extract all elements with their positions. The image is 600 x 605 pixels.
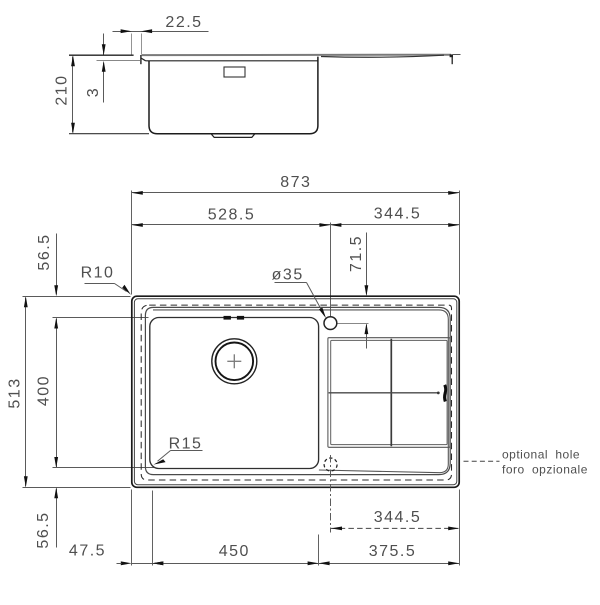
svg-text:56.5: 56.5 — [36, 233, 53, 270]
svg-text:344.5: 344.5 — [374, 206, 422, 223]
svg-text:56.5: 56.5 — [35, 511, 52, 548]
svg-text:foro opzionale: foro opzionale — [502, 463, 588, 477]
svg-text:R10: R10 — [81, 264, 115, 281]
svg-text:513: 513 — [6, 377, 23, 408]
svg-text:ø35: ø35 — [272, 267, 304, 284]
svg-text:873: 873 — [280, 174, 311, 191]
svg-text:375.5: 375.5 — [369, 543, 417, 560]
svg-text:71.5: 71.5 — [348, 235, 365, 272]
svg-text:22.5: 22.5 — [165, 14, 202, 31]
svg-text:344.5: 344.5 — [374, 509, 422, 526]
svg-text:528.5: 528.5 — [208, 207, 256, 224]
svg-text:450: 450 — [219, 543, 250, 560]
svg-text:optional hole: optional hole — [502, 448, 580, 462]
svg-text:400: 400 — [35, 375, 52, 406]
svg-text:R15: R15 — [169, 436, 203, 453]
svg-text:47.5: 47.5 — [69, 542, 106, 559]
svg-text:3: 3 — [85, 87, 102, 97]
svg-text:210: 210 — [53, 74, 70, 105]
